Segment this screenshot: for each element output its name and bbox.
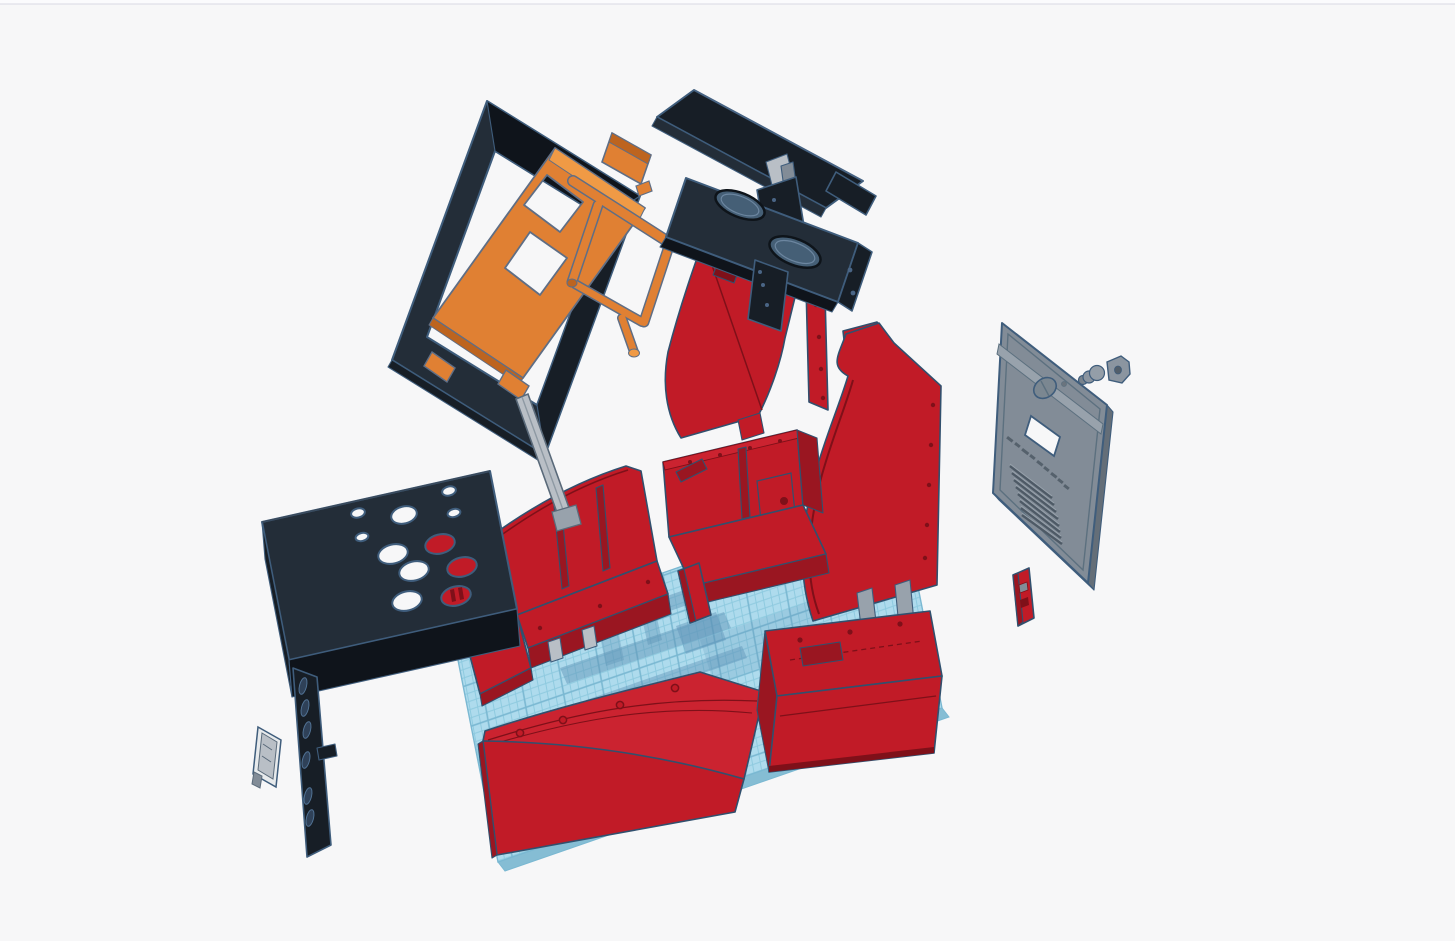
cad-stage bbox=[0, 0, 1455, 941]
viewport-canvas[interactable] bbox=[0, 0, 1455, 941]
part-speaker-bracket[interactable] bbox=[748, 260, 788, 331]
part-front-box-right[interactable] bbox=[757, 611, 942, 772]
top-hairline-bar bbox=[0, 0, 1455, 4]
